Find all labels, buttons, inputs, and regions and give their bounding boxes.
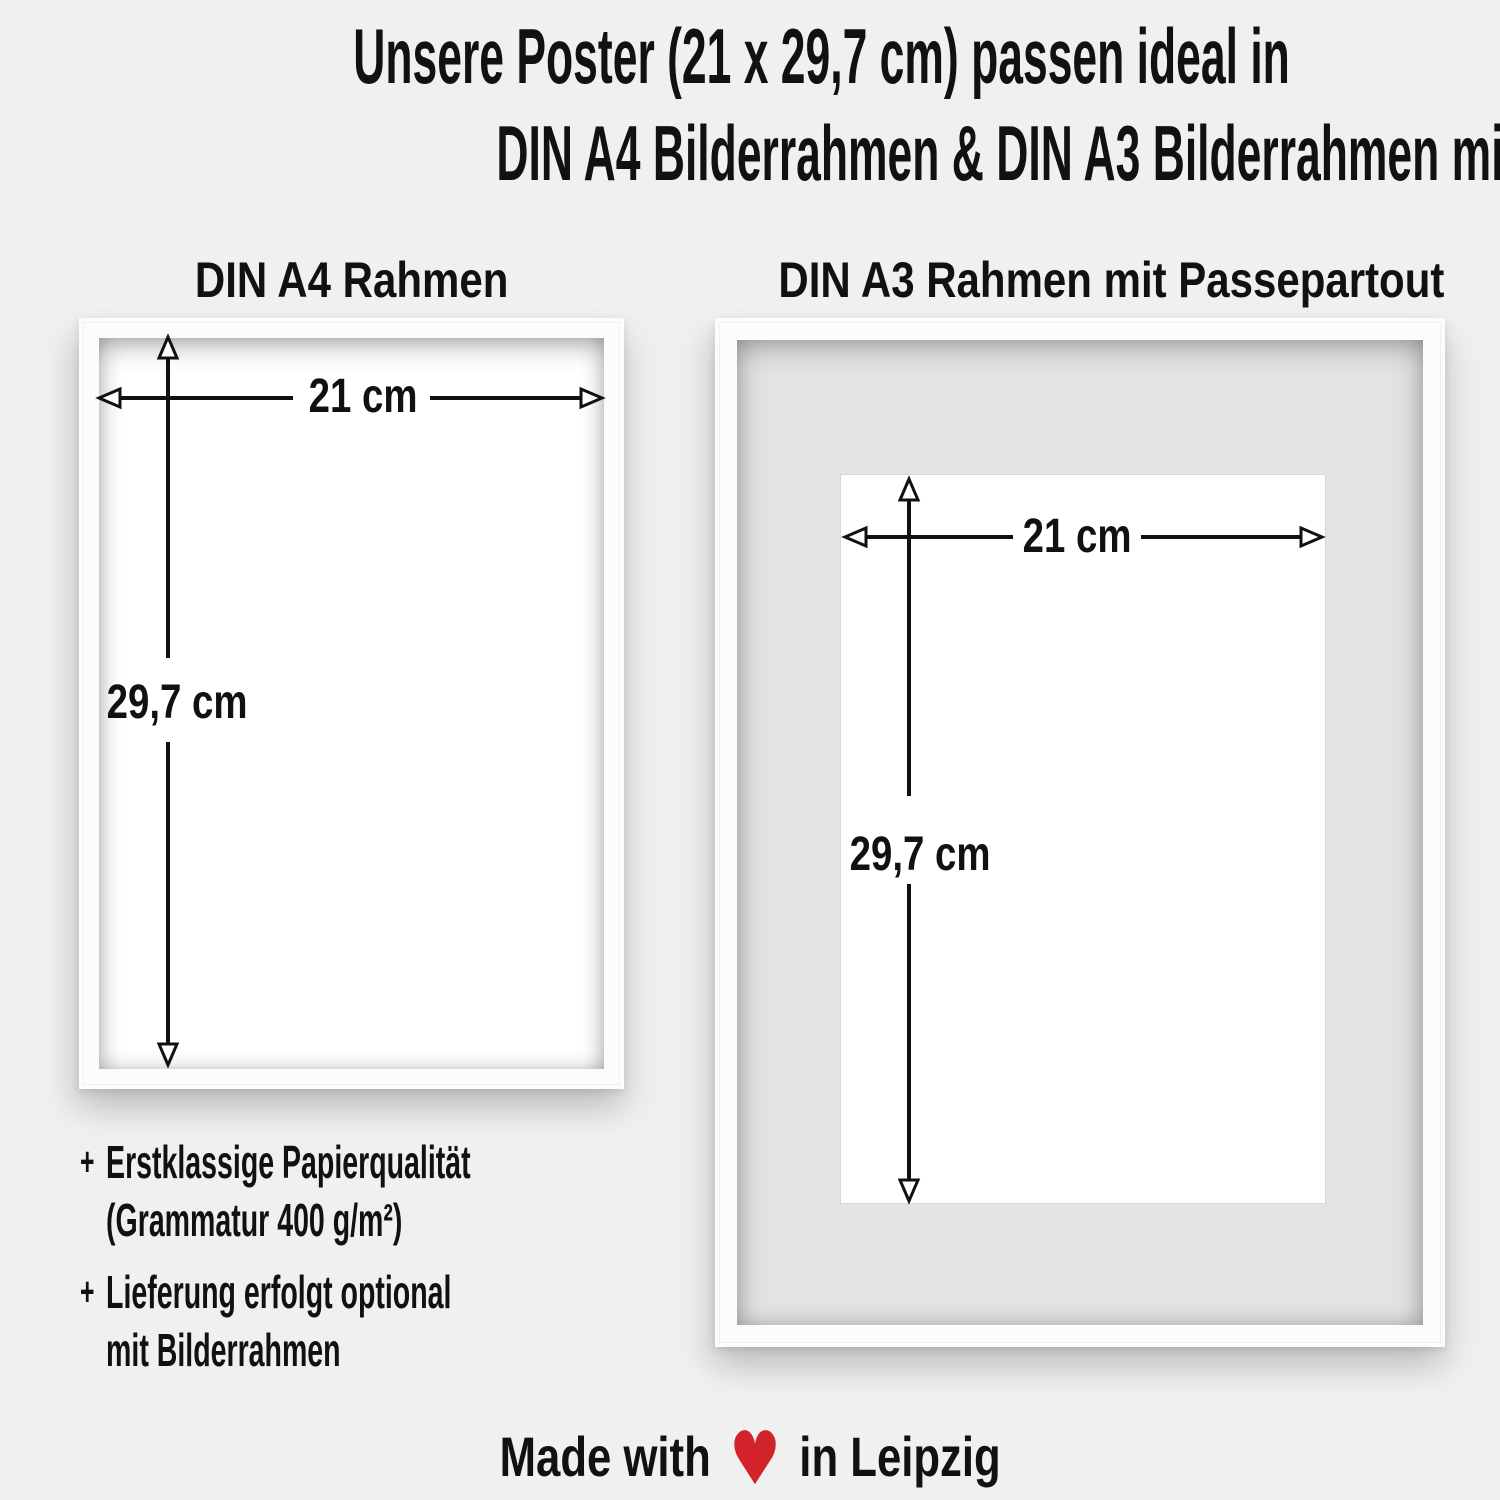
a4-frame-label: DIN A4 Rahmen [79, 252, 624, 308]
feature-text: Erstklassige Papierqualität (Grammatur 4… [106, 1133, 471, 1249]
a4-height-dimension-label: 29,7 cm [27, 677, 327, 729]
page-title-text-2: DIN A4 Bilderrahmen & DIN A3 Bilderrahme… [496, 109, 1500, 197]
heart-icon: ♥ [729, 1416, 781, 1500]
plus-bullet-icon: + [80, 1133, 106, 1191]
poster-size-infographic: Unsere Poster (21 x 29,7 cm) passen idea… [0, 0, 1500, 1500]
footer-tagline-text: Made with ♥ in Leipzig [499, 1422, 1000, 1494]
page-title-line-2: DIN A4 Bilderrahmen & DIN A3 Bilderrahme… [0, 109, 1500, 197]
a4-width-dimension-label: 21 cm [213, 371, 513, 423]
page-title-text-1: Unsere Poster (21 x 29,7 cm) passen idea… [353, 12, 1290, 100]
feature-text: Lieferung erfolgt optional mit Bilderrah… [106, 1263, 451, 1379]
footer-text-suffix: in Leipzig [799, 1425, 1000, 1488]
footer-text-prefix: Made with [499, 1425, 710, 1488]
a3-height-dimension-label: 29,7 cm [770, 829, 1070, 881]
footer-tagline: Made with ♥ in Leipzig [0, 1422, 1500, 1494]
page-title-line-1: Unsere Poster (21 x 29,7 cm) passen idea… [0, 12, 1500, 100]
feature-paper-quality: + Erstklassige Papierqualität (Grammatur… [80, 1133, 471, 1249]
a3-frame-label: DIN A3 Rahmen mit Passepartout [715, 252, 1445, 308]
feature-list: + Erstklassige Papierqualität (Grammatur… [80, 1133, 710, 1379]
plus-bullet-icon: + [80, 1263, 106, 1321]
feature-frame-delivery: + Lieferung erfolgt optional mit Bilderr… [80, 1263, 471, 1379]
a3-width-dimension-label: 21 cm [927, 511, 1227, 563]
